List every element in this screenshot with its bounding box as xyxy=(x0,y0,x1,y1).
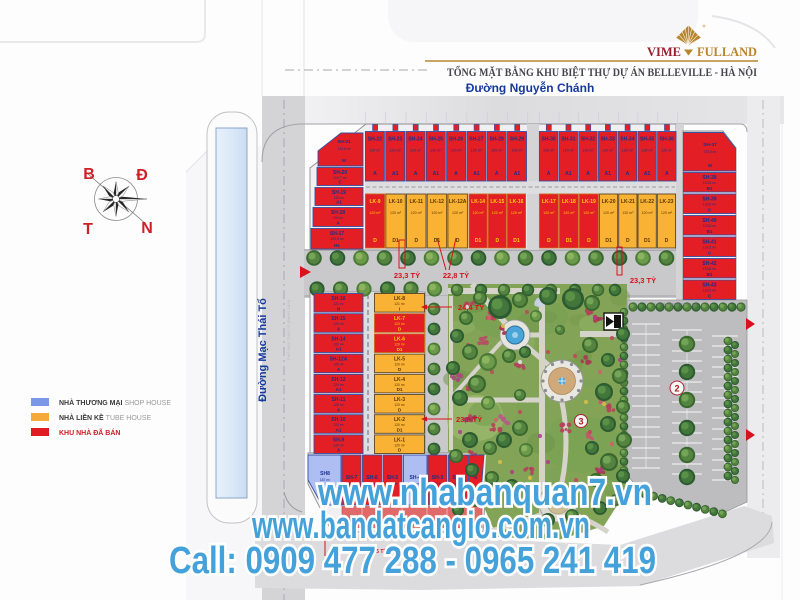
svg-text:133,6 m²: 133,6 m² xyxy=(703,203,717,207)
svg-text:SH-30: SH-30 xyxy=(542,137,556,143)
svg-text:A: A xyxy=(665,171,669,177)
svg-text:A1: A1 xyxy=(336,347,342,352)
svg-text:22,8 TỶ: 22,8 TỶ xyxy=(443,271,469,280)
svg-text:LK-20: LK-20 xyxy=(602,199,616,205)
svg-text:133,6 m²: 133,6 m² xyxy=(703,246,717,250)
svg-text:120 m²: 120 m² xyxy=(622,149,634,153)
svg-text:A: A xyxy=(373,171,377,177)
svg-text:120 m²: 120 m² xyxy=(642,149,654,153)
svg-text:D1: D1 xyxy=(605,238,612,244)
svg-text:M: M xyxy=(342,158,346,163)
svg-text:B1: B1 xyxy=(707,186,713,191)
svg-text:120 m²: 120 m² xyxy=(491,149,503,153)
svg-text:SH-21: SH-21 xyxy=(337,139,351,145)
svg-text:B1: B1 xyxy=(707,229,713,234)
svg-text:120 m²: 120 m² xyxy=(583,211,595,215)
svg-text:120 m²: 120 m² xyxy=(622,211,634,215)
svg-text:D1: D1 xyxy=(475,238,482,244)
svg-text:D: D xyxy=(373,238,377,244)
svg-text:275,5 m²: 275,5 m² xyxy=(703,150,717,154)
svg-text:120 m²: 120 m² xyxy=(452,211,464,215)
svg-text:120 m²: 120 m² xyxy=(661,211,673,215)
svg-text:120 m²: 120 m² xyxy=(411,211,423,215)
svg-text:3: 3 xyxy=(578,417,583,427)
svg-text:D1: D1 xyxy=(513,238,520,244)
svg-text:LK-22: LK-22 xyxy=(640,199,654,205)
svg-text:D1: D1 xyxy=(644,238,651,244)
svg-text:120 m²: 120 m² xyxy=(602,149,614,153)
svg-text:SH-32: SH-32 xyxy=(581,137,595,143)
svg-text:L.ĐA V.Đ NGHIÊN CỨU L.Đ: L.ĐA V.Đ NGHIÊN CỨU L.Đ xyxy=(655,302,698,307)
svg-text:A: A xyxy=(454,171,458,177)
svg-text:100,5 m²: 100,5 m² xyxy=(330,237,344,241)
svg-text:A1: A1 xyxy=(336,387,342,392)
svg-text:120 m²: 120 m² xyxy=(563,149,575,153)
svg-text:H1: H1 xyxy=(334,243,340,248)
svg-text:LK-14: LK-14 xyxy=(471,199,485,205)
svg-text:A: A xyxy=(495,171,499,177)
svg-text:120 m²: 120 m² xyxy=(369,149,381,153)
svg-text:LK-16: LK-16 xyxy=(510,199,524,205)
svg-text:Đường Nguyễn Chánh: Đường Nguyễn Chánh xyxy=(466,80,595,95)
svg-text:D: D xyxy=(456,238,460,244)
svg-text:A1: A1 xyxy=(336,428,342,433)
svg-text:120 m²: 120 m² xyxy=(473,211,485,215)
svg-text:A1: A1 xyxy=(433,171,440,177)
svg-text:D: D xyxy=(495,238,499,244)
svg-text:Call: 0909 477 288 - 0965 241: Call: 0909 477 288 - 0965 241 419 xyxy=(169,540,656,582)
svg-text:A1: A1 xyxy=(336,200,342,205)
svg-text:23,3 TỶ: 23,3 TỶ xyxy=(394,271,420,280)
svg-text:120 m²: 120 m² xyxy=(471,149,483,153)
svg-text:LK-17: LK-17 xyxy=(542,199,556,205)
svg-text:Đường Mạc Thái Tổ: Đường Mạc Thái Tổ xyxy=(257,298,269,402)
svg-text:120 m²: 120 m² xyxy=(543,149,555,153)
svg-text:D1: D1 xyxy=(566,238,573,244)
svg-text:A1: A1 xyxy=(644,171,651,177)
svg-text:LK-21: LK-21 xyxy=(621,199,635,205)
svg-text:SH-33: SH-33 xyxy=(601,137,615,143)
svg-text:SH-34: SH-34 xyxy=(620,137,634,143)
svg-text:120 m²: 120 m² xyxy=(394,322,405,326)
svg-text:120 m²: 120 m² xyxy=(603,211,615,215)
svg-text:120 m²: 120 m² xyxy=(431,211,443,215)
svg-text:120 m²: 120 m² xyxy=(492,211,504,215)
svg-text:SH-26: SH-26 xyxy=(449,137,463,143)
svg-text:LK-11: LK-11 xyxy=(409,199,423,205)
svg-text:NHÀ THƯƠNG MẠI SHOP HOUSE: NHÀ THƯƠNG MẠI SHOP HOUSE xyxy=(59,398,171,407)
svg-text:D1: D1 xyxy=(392,238,399,244)
svg-text:B1: B1 xyxy=(707,272,713,277)
svg-text:LK-12: LK-12 xyxy=(430,199,444,205)
svg-text:23,3 TỶ: 23,3 TỶ xyxy=(630,276,656,285)
svg-text:133,6 m²: 133,6 m² xyxy=(703,181,717,185)
svg-text:A1: A1 xyxy=(392,171,399,177)
svg-text:D1: D1 xyxy=(397,428,403,433)
svg-text:A: A xyxy=(586,171,590,177)
svg-text:D: D xyxy=(414,238,418,244)
svg-text:LK-10: LK-10 xyxy=(389,199,403,205)
svg-text:133,6 m²: 133,6 m² xyxy=(703,289,717,293)
svg-text:SH-25: SH-25 xyxy=(429,137,443,143)
svg-text:FULLAND: FULLAND xyxy=(697,44,757,59)
svg-text:120 m²: 120 m² xyxy=(333,216,344,220)
svg-text:SH-37: SH-37 xyxy=(703,142,717,148)
svg-text:120 m²: 120 m² xyxy=(511,211,523,215)
svg-text:23,9 TỶ: 23,9 TỶ xyxy=(456,415,482,424)
svg-text:PHỐ MẠC THÁI TỔ (ĐANG LÀM): PHỐ MẠC THÁI TỔ (ĐANG LÀM) xyxy=(286,299,291,360)
svg-text:133,6 m²: 133,6 m² xyxy=(703,224,717,228)
svg-text:LK-9: LK-9 xyxy=(369,199,380,205)
svg-text:120 m²: 120 m² xyxy=(390,149,402,153)
svg-text:120 m²: 120 m² xyxy=(390,211,402,215)
svg-text:SH-22: SH-22 xyxy=(368,137,382,143)
svg-text:D: D xyxy=(626,238,630,244)
svg-text:D1: D1 xyxy=(397,387,403,392)
svg-text:M: M xyxy=(708,163,712,168)
svg-text:LK-18: LK-18 xyxy=(562,199,576,205)
svg-text:SH-23: SH-23 xyxy=(388,137,402,143)
svg-text:SH-35: SH-35 xyxy=(640,137,654,143)
svg-text:A: A xyxy=(626,171,630,177)
svg-text:A1: A1 xyxy=(514,171,521,177)
svg-text:LK-23: LK-23 xyxy=(659,199,673,205)
svg-text:133,6 m²: 133,6 m² xyxy=(703,267,717,271)
svg-text:2: 2 xyxy=(674,384,679,394)
svg-text:A1: A1 xyxy=(473,171,480,177)
svg-text:120 m²: 120 m² xyxy=(563,211,575,215)
svg-text:120 m²: 120 m² xyxy=(430,149,442,153)
svg-text:124,8 m²: 124,8 m² xyxy=(337,147,351,151)
svg-text:Đ: Đ xyxy=(136,167,148,184)
svg-text:VIME: VIME xyxy=(647,44,681,59)
svg-text:SH-29: SH-29 xyxy=(510,137,524,143)
svg-text:LK-19: LK-19 xyxy=(582,199,596,205)
svg-text:SH-36: SH-36 xyxy=(660,137,674,143)
svg-text:SH-24: SH-24 xyxy=(408,137,422,143)
svg-text:SH-27: SH-27 xyxy=(469,137,483,143)
svg-text:120 m²: 120 m² xyxy=(369,211,381,215)
svg-text:120 m²: 120 m² xyxy=(394,342,405,346)
svg-text:A: A xyxy=(547,171,551,177)
svg-text:D: D xyxy=(665,238,669,244)
svg-text:LK-12A: LK-12A xyxy=(449,199,467,205)
svg-text:24,4 TỶ: 24,4 TỶ xyxy=(458,303,484,312)
svg-text:D: D xyxy=(547,238,551,244)
svg-text:120 m²: 120 m² xyxy=(582,149,594,153)
svg-text:D1: D1 xyxy=(397,347,403,352)
svg-text:120 m²: 120 m² xyxy=(543,211,555,215)
svg-text:120 m²: 120 m² xyxy=(410,149,422,153)
svg-text:A1: A1 xyxy=(604,171,611,177)
svg-text:120 m²: 120 m² xyxy=(511,149,523,153)
svg-text:A: A xyxy=(414,171,418,177)
svg-text:N: N xyxy=(141,220,153,237)
svg-text:120 m²: 120 m² xyxy=(661,149,673,153)
svg-text:TỔNG MẶT BẰNG KHU BIỆT THỰ DỰ: TỔNG MẶT BẰNG KHU BIỆT THỰ DỰ ÁN BELLEVI… xyxy=(447,64,757,79)
svg-text:120 m²: 120 m² xyxy=(451,149,463,153)
svg-text:A1: A1 xyxy=(565,171,572,177)
svg-text:120 m²: 120 m² xyxy=(642,211,654,215)
svg-text:KHU NHÀ ĐÃ BÁN: KHU NHÀ ĐÃ BÁN xyxy=(59,428,120,437)
svg-text:LK-15: LK-15 xyxy=(490,199,504,205)
svg-text:D: D xyxy=(587,238,591,244)
svg-text:SH-28: SH-28 xyxy=(490,137,504,143)
svg-text:B: B xyxy=(83,166,95,183)
svg-text:SH-31: SH-31 xyxy=(561,137,575,143)
svg-text:T: T xyxy=(83,221,93,238)
svg-text:I: I xyxy=(399,306,400,311)
